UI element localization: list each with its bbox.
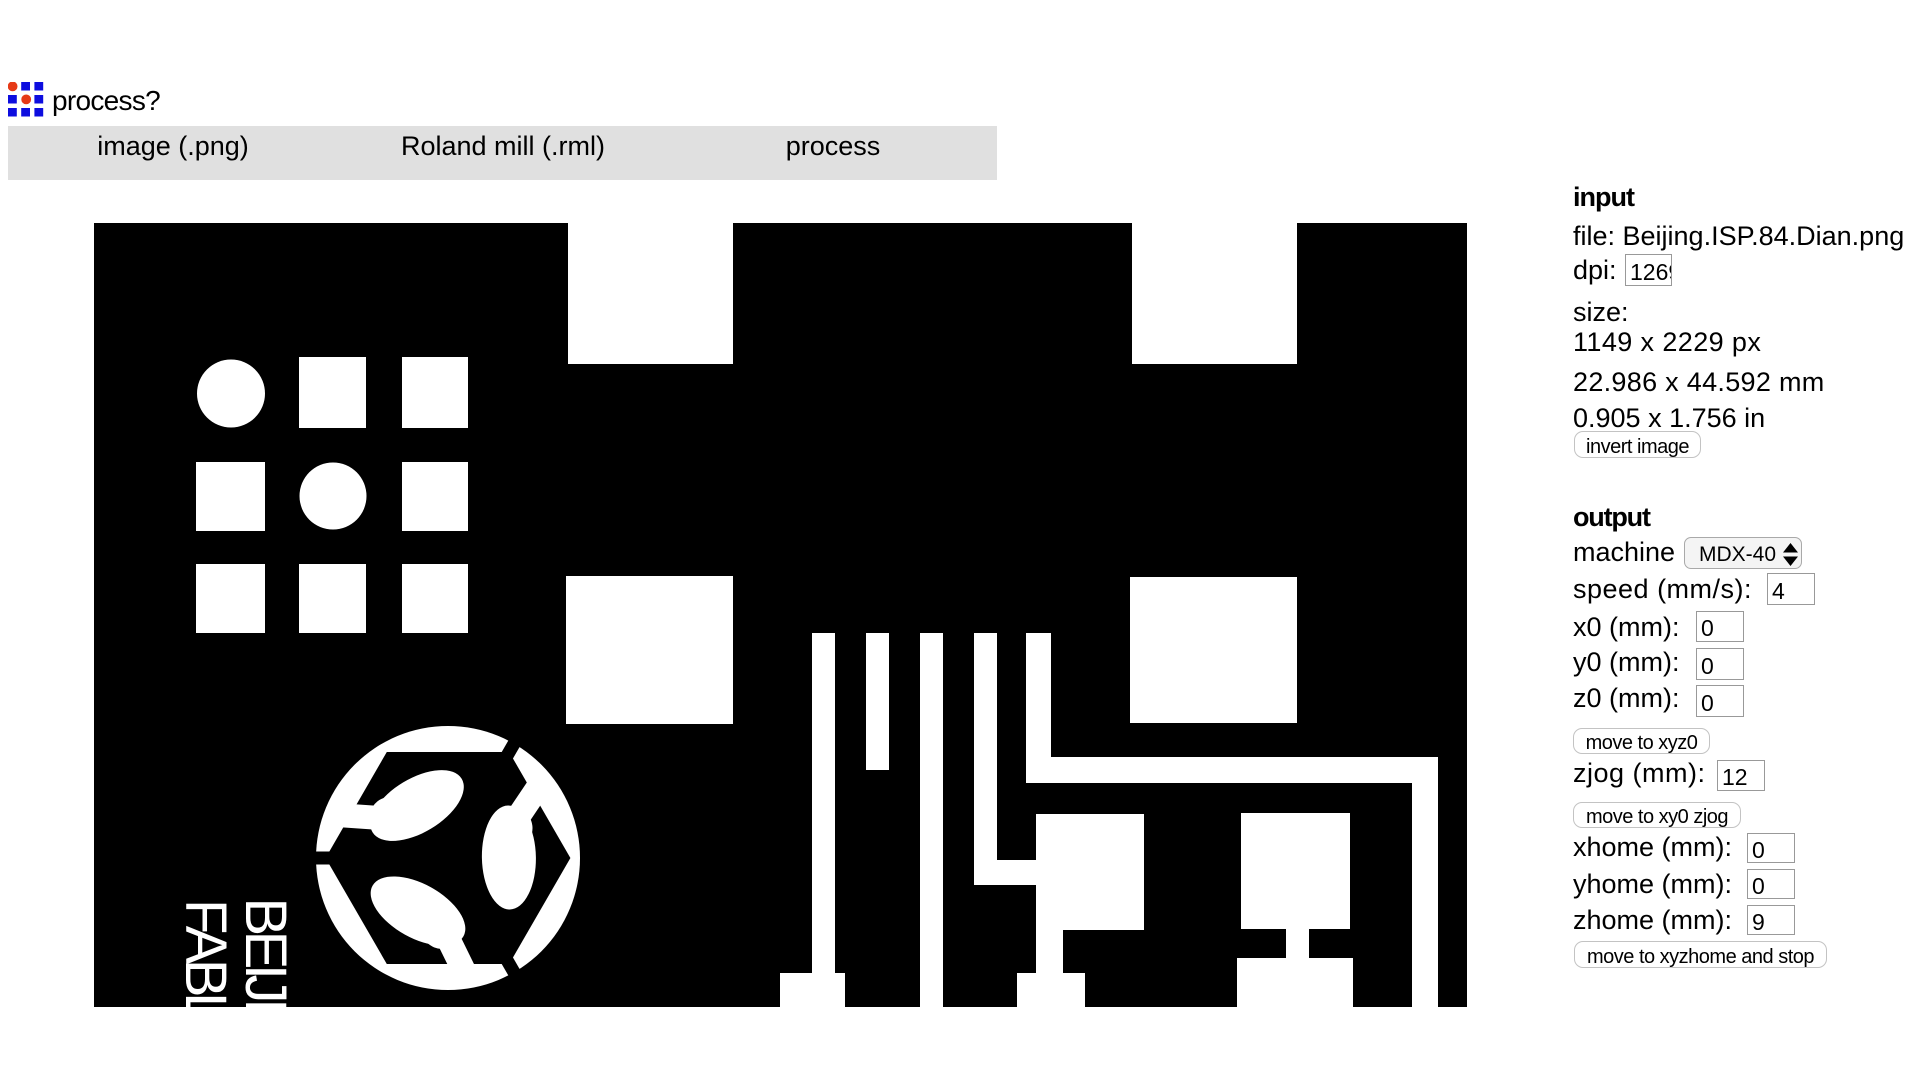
svg-text:FABLAB: FABLAB	[173, 899, 238, 1007]
svg-text:BEIJING: BEIJING	[233, 898, 298, 1008]
